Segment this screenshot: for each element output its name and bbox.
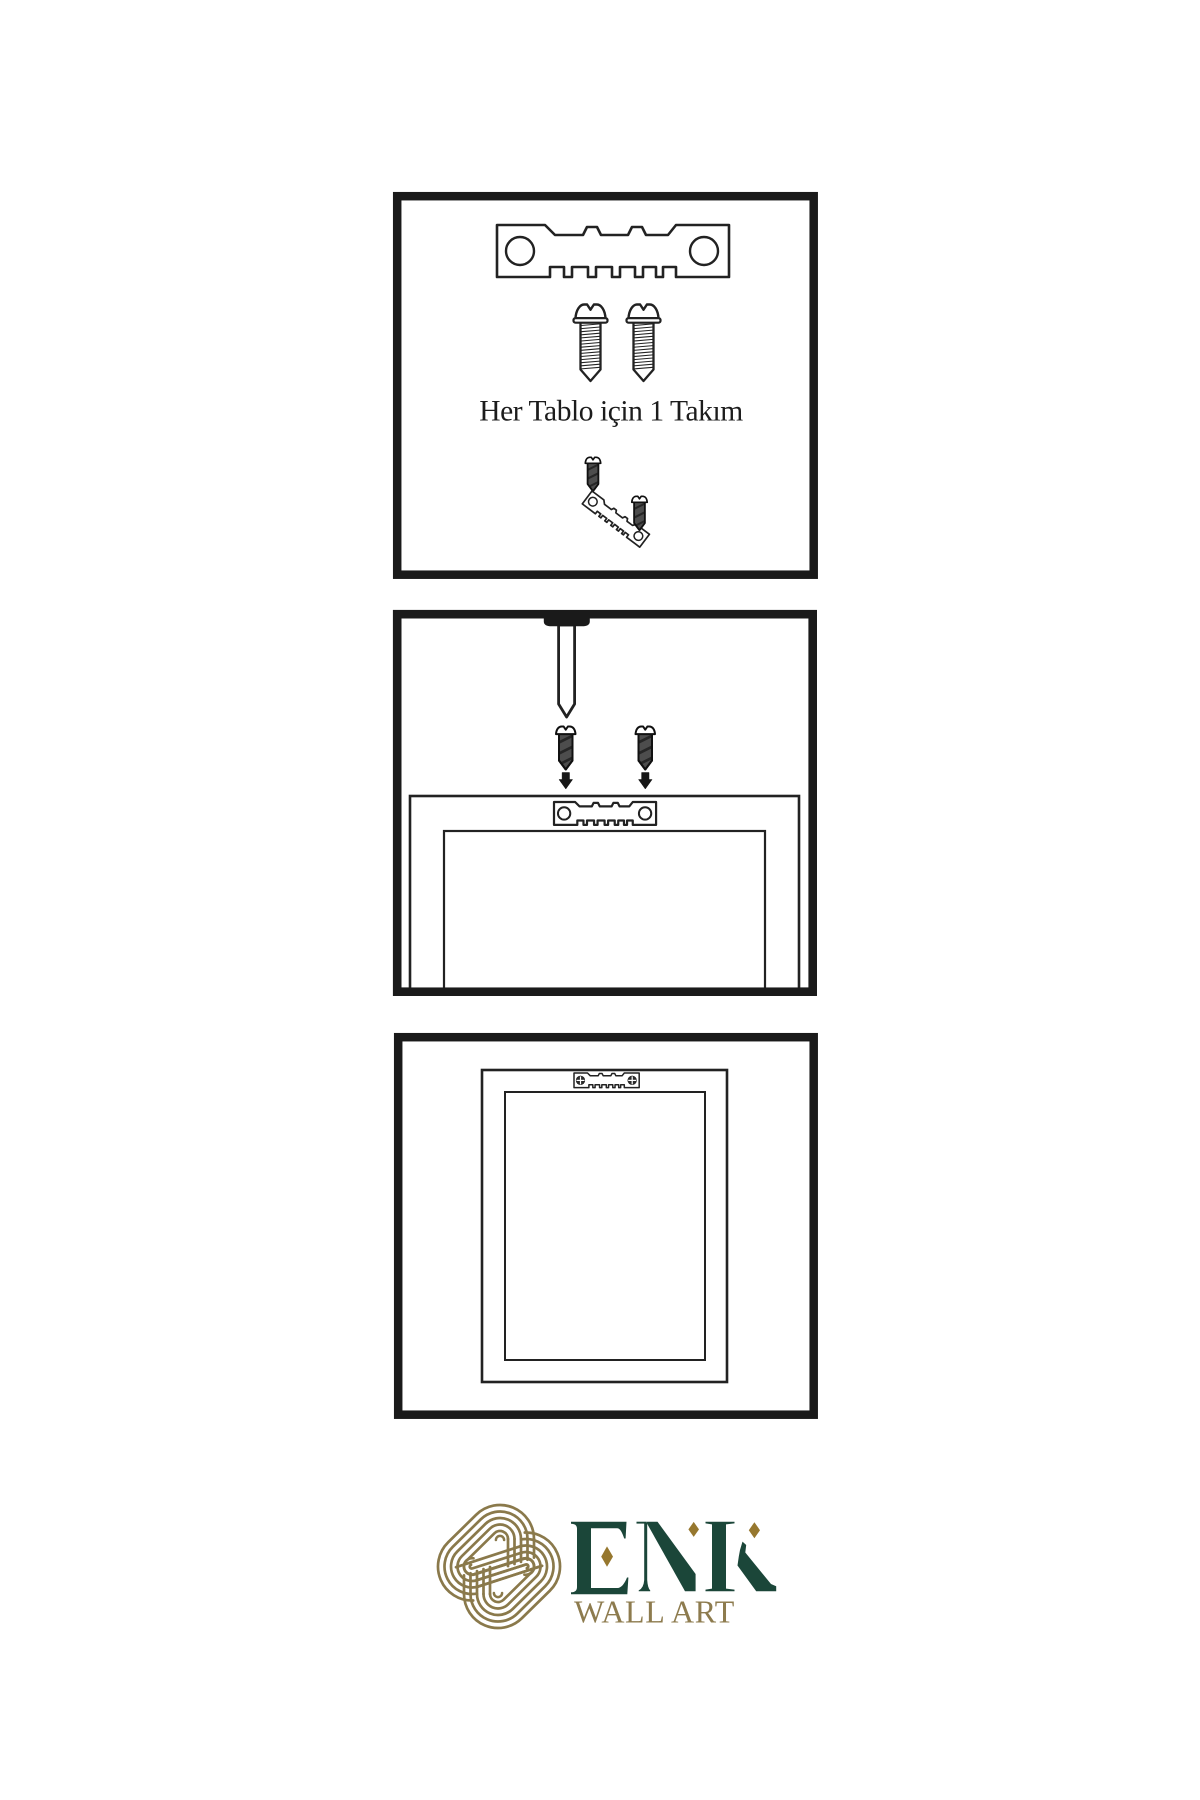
svg-text:Her Tablo için 1 Takım: Her Tablo için 1 Takım — [479, 396, 743, 428]
svg-text:WALL ART: WALL ART — [574, 1594, 735, 1630]
